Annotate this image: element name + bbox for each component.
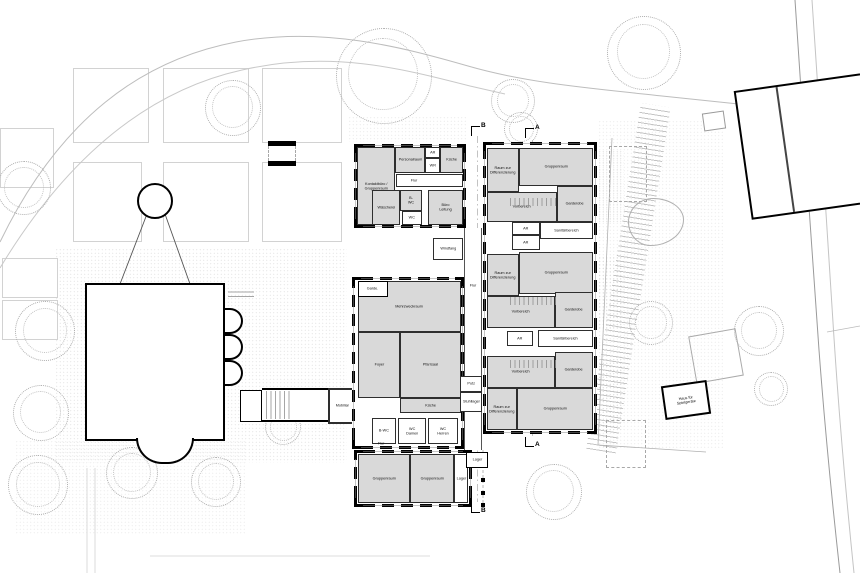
room-label: Raum zur Differenzierung — [490, 271, 515, 279]
room-ar-2: AR — [507, 331, 533, 346]
room-label: Büro Leitung — [438, 203, 453, 211]
existing-annex — [702, 111, 726, 132]
section-marker-b-top: B — [481, 122, 486, 129]
stair-treads — [510, 360, 556, 368]
tree — [629, 301, 673, 345]
room-label: Flur — [411, 178, 417, 182]
room-buero-leitung: Büro Leitung — [428, 190, 463, 225]
room-label: B-WC — [406, 196, 415, 204]
room-label: Vorbereich — [512, 310, 530, 314]
tree — [607, 16, 681, 90]
room-label: Gruppenraum — [544, 271, 567, 275]
room-ar: AR — [425, 147, 440, 158]
site-plan-canvas: Haus für Spielgeräte Mobiliar Kontaktbür… — [0, 0, 860, 573]
tree — [336, 28, 432, 124]
room-personalraum: Personalraum — [395, 147, 425, 173]
room-label: AR — [517, 336, 522, 340]
existing-building-northeast — [734, 70, 860, 220]
room-label: Sanitärbereich — [554, 228, 578, 232]
room-wc: WC — [402, 211, 422, 225]
church-nave — [85, 283, 225, 441]
room-label: Personalraum — [398, 158, 421, 162]
tree — [13, 385, 69, 441]
sandbox — [688, 328, 744, 384]
tree — [205, 80, 261, 136]
tree — [8, 455, 68, 515]
room-garderobe-2: Garderobe — [555, 292, 593, 328]
link-stairs — [266, 391, 292, 419]
room-label: Küche — [425, 403, 436, 407]
room-label: Sanitärbereich — [553, 336, 577, 340]
room-gruppenraum-4: Gruppenraum — [358, 454, 410, 503]
room-label: Flur — [378, 442, 384, 446]
window-band — [463, 153, 466, 219]
window-band — [492, 142, 588, 145]
room-label: Gruppenraum — [420, 476, 443, 480]
room-garderobe-3: Garderobe — [555, 352, 593, 388]
tree — [15, 301, 75, 361]
room-label: Raum zur Differenzierung — [490, 166, 515, 174]
room-bwc: B-WC — [400, 190, 422, 211]
room-flur-a: Flur — [396, 174, 463, 187]
room-stuhllager: Stuhllager — [460, 392, 482, 412]
church-steps — [228, 288, 254, 297]
stair-treads — [510, 297, 556, 305]
room-sanitaer-2: Sanitärbereich — [538, 330, 593, 347]
room-gruppenraum-5: Gruppenraum — [410, 454, 454, 503]
section-marker-symbol — [471, 126, 480, 136]
corridor-spine — [464, 228, 482, 450]
section-marker-a-top: A — [535, 124, 540, 131]
section-marker-a-bottom: A — [535, 441, 540, 448]
room-label: WC — [409, 216, 415, 220]
room-kueche-saal: Küche — [400, 398, 461, 413]
room-waescherei: Wäscherei — [372, 190, 400, 225]
room-ar-1b: AR — [512, 235, 540, 250]
window-band — [361, 277, 455, 280]
room-label: Windfang — [440, 247, 456, 251]
link-room — [240, 390, 262, 422]
room-putz: Putz — [460, 376, 482, 392]
room-label: Foyer — [374, 363, 384, 367]
play-area-dashed — [606, 420, 646, 468]
room-label: Flur — [470, 283, 476, 287]
room-label: Gruppenraum — [372, 476, 395, 480]
room-label: WC Herren — [437, 427, 450, 435]
room-ar-1a: AR — [512, 222, 540, 235]
room-garde: Garde. — [358, 281, 388, 297]
room-label: AR — [523, 240, 528, 244]
room-label: Garderobe — [565, 368, 583, 372]
window-band — [363, 450, 463, 453]
room-label: Mobiliar — [335, 404, 348, 408]
corridor-flur-label: Flur — [464, 281, 482, 289]
room-raum-differenzierung-2: Raum zur Differenzierung — [487, 254, 519, 296]
room-label: Kontaktbüro / Gruppenraum — [364, 182, 387, 190]
equipment-shed: Haus für Spielgeräte — [661, 380, 711, 420]
room-label: Garderobe — [565, 308, 583, 312]
room-label: WR — [429, 163, 435, 167]
room-wc-damen: WC Damen — [398, 418, 426, 444]
room-label: AR — [523, 226, 528, 230]
existing-building-partition — [776, 87, 795, 212]
room-label: WC Damen — [406, 427, 418, 435]
window-band — [363, 504, 463, 507]
room-label: Mehrzweckraum — [396, 304, 424, 308]
room-label: Lager — [456, 476, 466, 480]
room-label: Putz — [467, 382, 475, 386]
room-lager-annex: Lager — [466, 452, 488, 468]
room-foyer: Foyer — [358, 332, 400, 398]
window-band — [352, 286, 355, 440]
room-gruppenraum-1: Gruppenraum — [519, 148, 593, 186]
section-marker-b-bottom: B — [481, 507, 486, 514]
room-label: Vorbereich — [512, 370, 530, 374]
window-band — [492, 431, 588, 434]
stair-treads — [510, 198, 556, 206]
room-label: Wäscherei — [377, 205, 395, 209]
room-wc-herren: WC Herren — [428, 418, 458, 444]
room-label: B-WC — [379, 429, 389, 433]
room-windfang: Windfang — [433, 238, 463, 260]
room-gruppenraum-3: Gruppenraum — [517, 388, 593, 430]
room-pfarrsaal: Pfarrsaal — [400, 332, 461, 398]
pergola-post — [481, 478, 485, 482]
room-label: Pfarrsaal — [423, 363, 438, 367]
pergola-post — [481, 491, 485, 495]
section-marker-symbol — [525, 128, 534, 138]
room-label: Garde. — [367, 287, 379, 291]
window-band — [594, 151, 597, 425]
window-band — [363, 225, 457, 228]
section-marker-symbol — [525, 437, 534, 447]
room-label: Küche — [446, 158, 457, 162]
church-tower — [137, 183, 173, 219]
tree — [526, 464, 582, 520]
play-area-dashed — [609, 146, 647, 202]
room-label: Lager — [472, 458, 482, 462]
room-kueche: Küche — [440, 147, 463, 173]
window-band — [354, 459, 357, 498]
room-garderobe-1: Garderobe — [557, 186, 593, 222]
room-label: Raum zur Differenzierung — [489, 405, 514, 413]
room-vorbereich-1: Vorbereich — [487, 192, 557, 222]
tree — [754, 372, 788, 406]
room-wr: WR — [425, 158, 440, 173]
room-flur-saal: Flur — [374, 440, 394, 448]
room-raum-differenzierung-3: Raum zur Differenzierung — [487, 388, 517, 430]
room-label: Garderobe — [566, 202, 584, 206]
section-marker-symbol — [471, 503, 480, 513]
room-label: Gruppenraum — [544, 165, 567, 169]
room-label: Gruppenraum — [543, 407, 566, 411]
tree — [734, 306, 784, 356]
equipment-shed-label: Haus für Spielgeräte — [676, 394, 696, 405]
room-sanitaer-1: Sanitärbereich — [540, 222, 593, 239]
room-gruppenraum-2: Gruppenraum — [519, 252, 593, 294]
room-label: Stuhllager — [463, 400, 480, 404]
room-label: AR — [430, 150, 435, 154]
room-raum-differenzierung-1: Raum zur Differenzierung — [487, 148, 519, 192]
window-band — [483, 151, 486, 425]
tree — [191, 457, 241, 507]
